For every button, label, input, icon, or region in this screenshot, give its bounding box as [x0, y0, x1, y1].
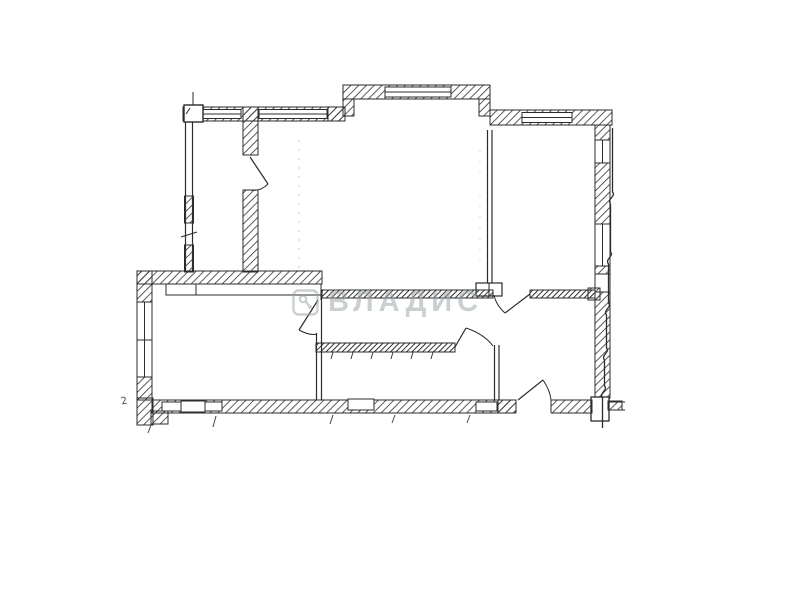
bottom-exterior-wall	[152, 398, 592, 415]
wall-segment	[595, 163, 610, 224]
door-swing	[455, 328, 493, 347]
inner-room-top-wall	[316, 343, 455, 352]
window-band	[166, 284, 321, 295]
central-wall-junction	[588, 288, 600, 300]
right-exterior-wall	[591, 125, 610, 421]
door-swing	[299, 300, 318, 335]
strip-wall-lower	[243, 190, 258, 272]
scanned-floor-plan: ВЛАДИС 2	[0, 0, 800, 600]
mid-left-wall	[137, 271, 322, 284]
wall-segment	[595, 266, 610, 274]
strip-wall-upper	[243, 107, 258, 155]
thin-walls	[181, 92, 502, 400]
window	[348, 399, 374, 410]
interior-walls	[243, 107, 600, 413]
door-opening	[516, 398, 551, 415]
exterior-walls	[137, 85, 625, 425]
floor-plan-drawing	[0, 0, 800, 600]
wall-pier	[591, 397, 609, 421]
dimension-ticks	[148, 415, 470, 433]
dimension-tick	[181, 232, 197, 237]
wall-segment	[595, 125, 610, 140]
window	[476, 402, 497, 411]
wall-segment	[498, 400, 516, 413]
corner-step	[151, 411, 168, 424]
top-wall-stub-left-of-bay	[328, 107, 345, 121]
door-swing	[250, 157, 268, 190]
door-swing	[518, 380, 551, 400]
wall-texture-ticks	[331, 352, 433, 359]
wall-pier	[185, 245, 194, 272]
wall-segment	[137, 377, 152, 400]
central-wall-right	[530, 290, 595, 298]
window-frame	[181, 401, 205, 412]
door-swing	[494, 294, 530, 313]
bay-window	[328, 85, 490, 121]
wall-pier	[185, 196, 194, 223]
bay-side-wall-right	[479, 99, 490, 116]
central-wall-left	[322, 290, 493, 298]
